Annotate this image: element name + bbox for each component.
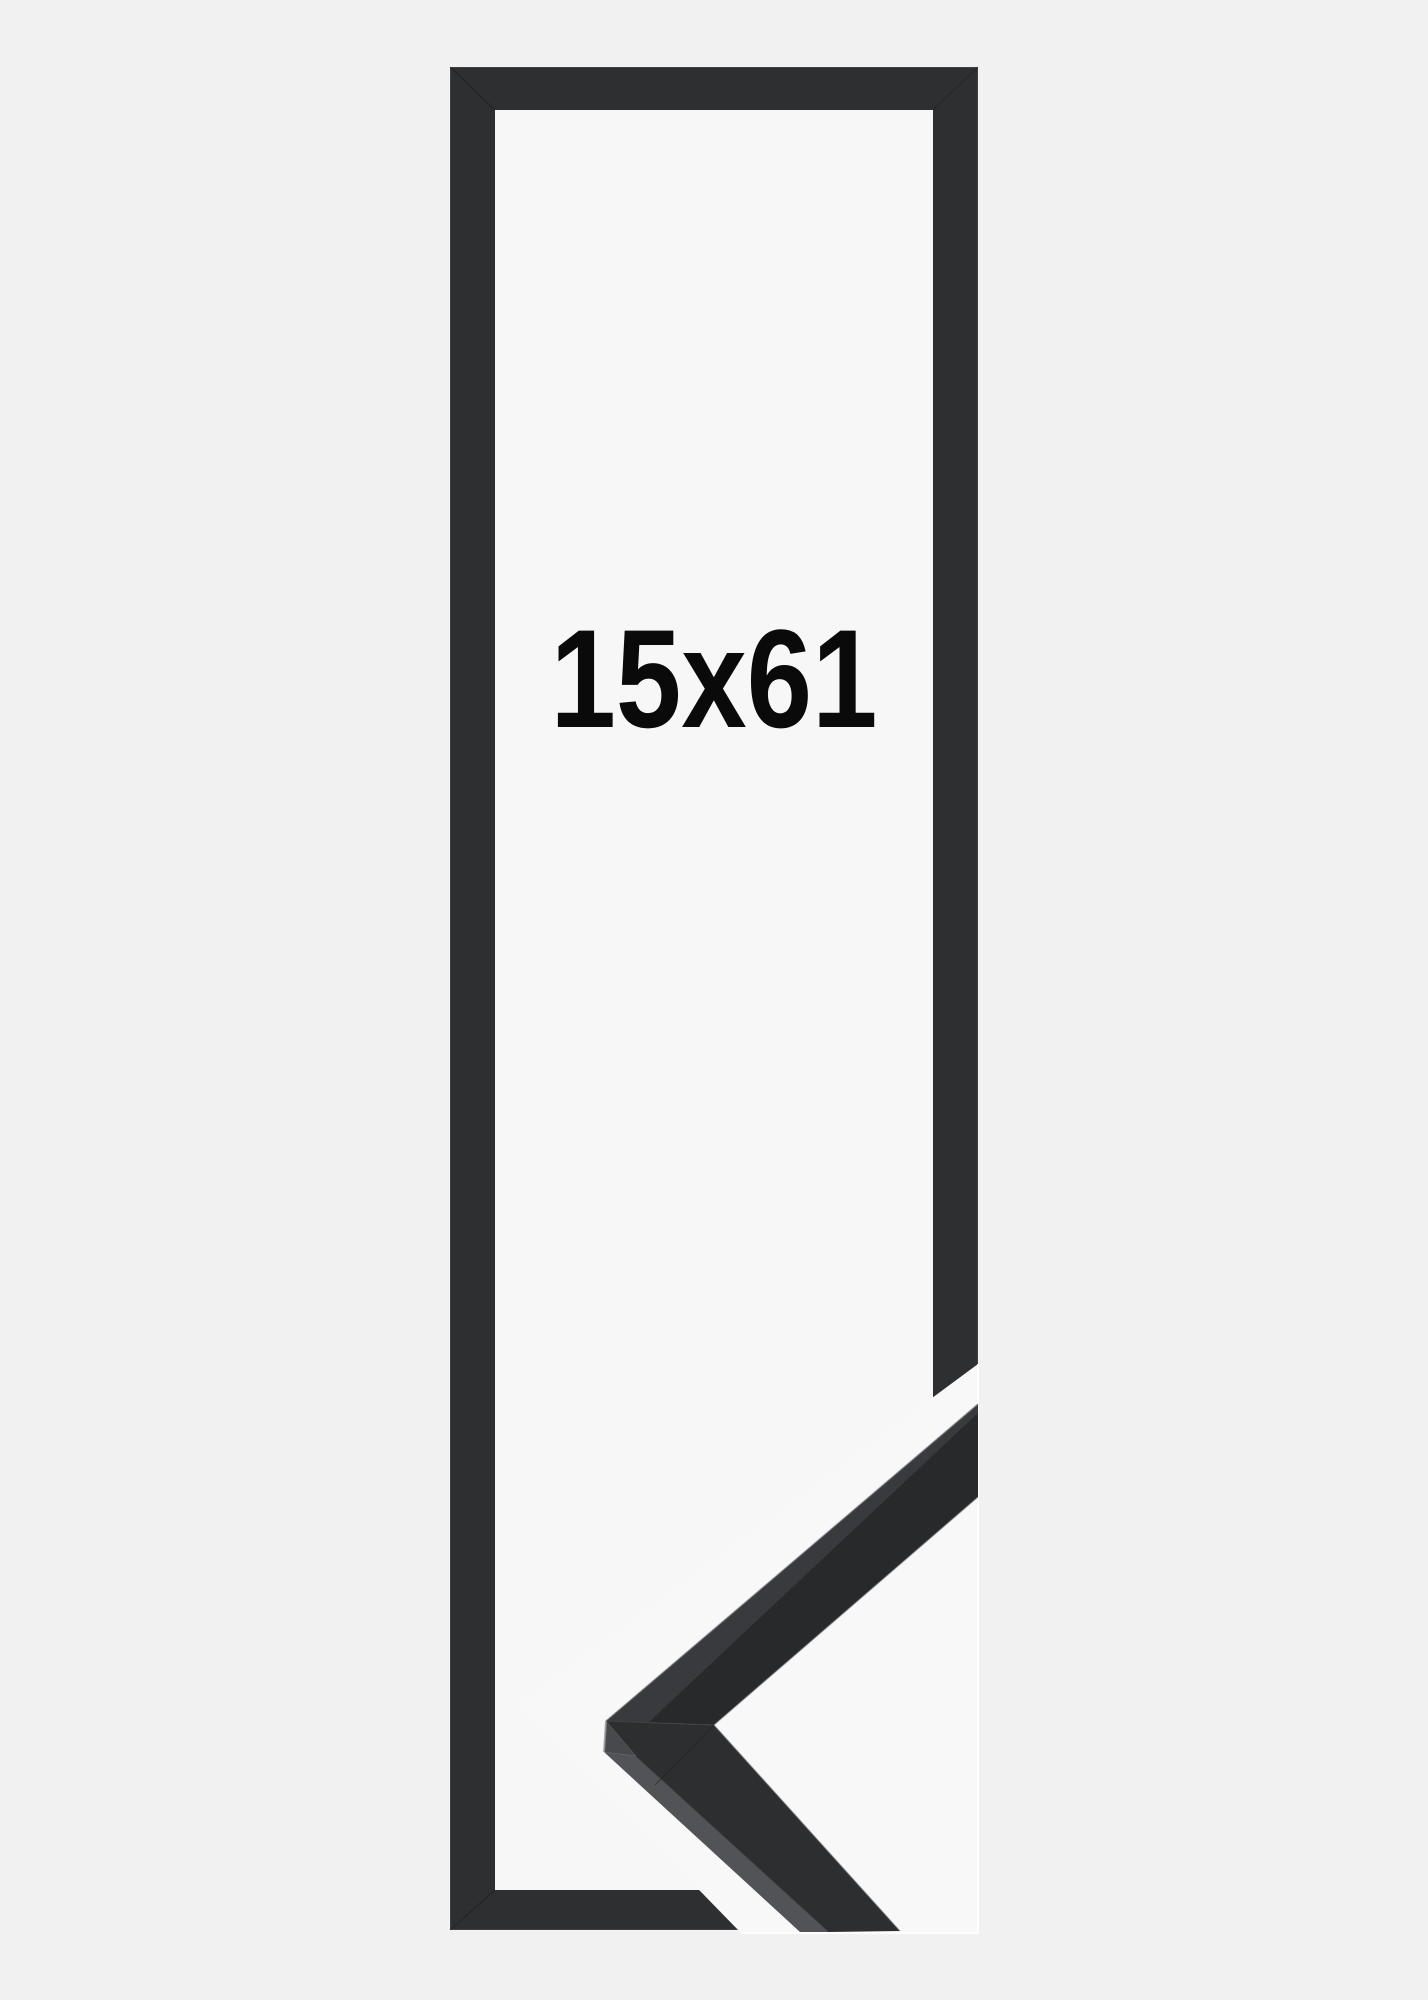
frame-size-label: 15x61 [551,601,878,757]
product-image: 15x61 [0,0,1428,2000]
